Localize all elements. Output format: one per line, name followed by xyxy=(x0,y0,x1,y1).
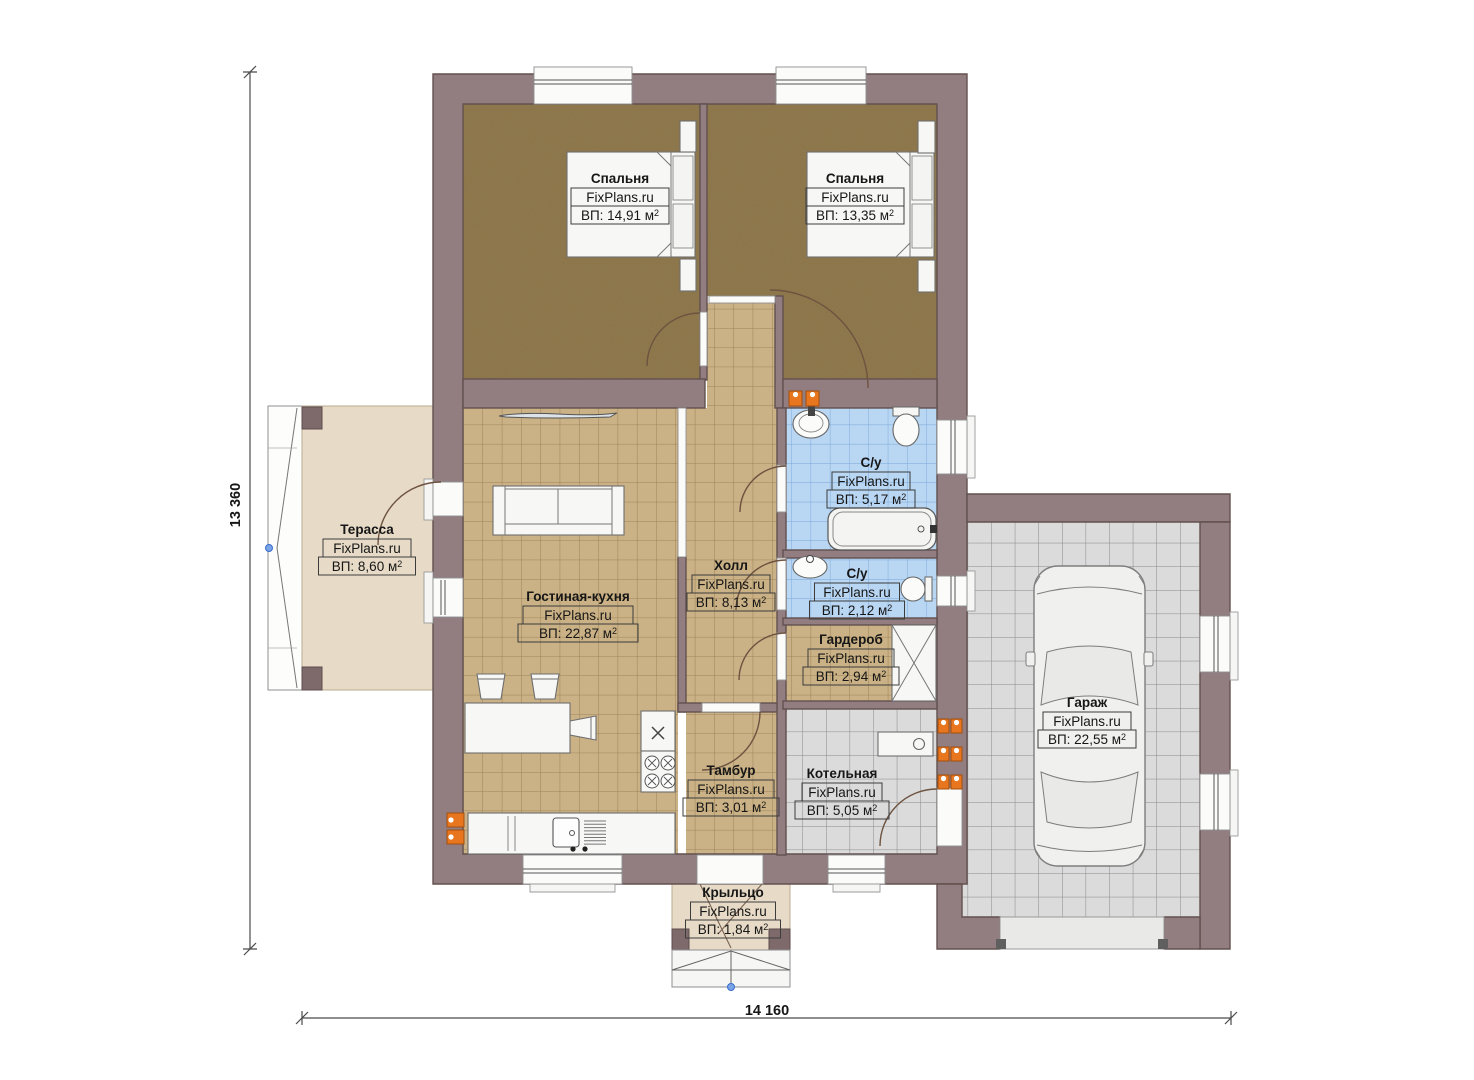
svg-text:14 160: 14 160 xyxy=(745,1003,789,1019)
svg-text:FixPlans.ru: FixPlans.ru xyxy=(1053,714,1121,729)
svg-text:ВП: 5,17 м2: ВП: 5,17 м2 xyxy=(836,492,907,507)
svg-text:ВП: 2,12 м2: ВП: 2,12 м2 xyxy=(822,603,893,618)
svg-text:Спальня: Спальня xyxy=(826,171,884,186)
svg-text:ВП: 22,55 м2: ВП: 22,55 м2 xyxy=(1048,732,1126,747)
svg-text:ВП: 22,87 м2: ВП: 22,87 м2 xyxy=(539,626,617,641)
svg-text:Котельная: Котельная xyxy=(807,766,878,781)
svg-text:Спальня: Спальня xyxy=(591,171,649,186)
svg-text:Крыльцо: Крыльцо xyxy=(702,885,763,900)
svg-text:FixPlans.ru: FixPlans.ru xyxy=(837,474,905,489)
svg-text:FixPlans.ru: FixPlans.ru xyxy=(808,785,876,800)
svg-text:Гардероб: Гардероб xyxy=(819,632,883,647)
svg-text:FixPlans.ru: FixPlans.ru xyxy=(823,585,891,600)
svg-text:FixPlans.ru: FixPlans.ru xyxy=(697,577,765,592)
svg-text:ВП: 5,05 м2: ВП: 5,05 м2 xyxy=(807,803,878,818)
svg-text:FixPlans.ru: FixPlans.ru xyxy=(586,190,654,205)
svg-text:FixPlans.ru: FixPlans.ru xyxy=(697,782,765,797)
svg-text:FixPlans.ru: FixPlans.ru xyxy=(544,608,612,623)
svg-text:Гараж: Гараж xyxy=(1067,695,1108,710)
svg-text:ВП: 2,94 м2: ВП: 2,94 м2 xyxy=(816,669,887,684)
svg-text:Терасса: Терасса xyxy=(340,522,394,537)
svg-text:ВП: 3,01 м2: ВП: 3,01 м2 xyxy=(696,800,767,815)
svg-text:ВП: 14,91 м2: ВП: 14,91 м2 xyxy=(581,208,659,223)
svg-text:С/у: С/у xyxy=(860,455,882,470)
svg-text:FixPlans.ru: FixPlans.ru xyxy=(333,541,401,556)
svg-text:С/у: С/у xyxy=(846,566,868,581)
svg-text:Тамбур: Тамбур xyxy=(707,763,756,778)
svg-text:FixPlans.ru: FixPlans.ru xyxy=(699,904,767,919)
svg-text:ВП: 8,60 м2: ВП: 8,60 м2 xyxy=(332,559,403,574)
svg-text:ВП: 13,35 м2: ВП: 13,35 м2 xyxy=(816,208,894,223)
svg-text:ВП: 8,13 м2: ВП: 8,13 м2 xyxy=(696,595,767,610)
svg-text:FixPlans.ru: FixPlans.ru xyxy=(821,190,889,205)
svg-text:13 360: 13 360 xyxy=(228,483,244,527)
svg-text:Гостиная-кухня: Гостиная-кухня xyxy=(526,589,629,604)
svg-text:ВП: 1,84 м2: ВП: 1,84 м2 xyxy=(698,922,769,937)
svg-text:FixPlans.ru: FixPlans.ru xyxy=(817,651,885,666)
svg-text:Холл: Холл xyxy=(714,558,748,573)
